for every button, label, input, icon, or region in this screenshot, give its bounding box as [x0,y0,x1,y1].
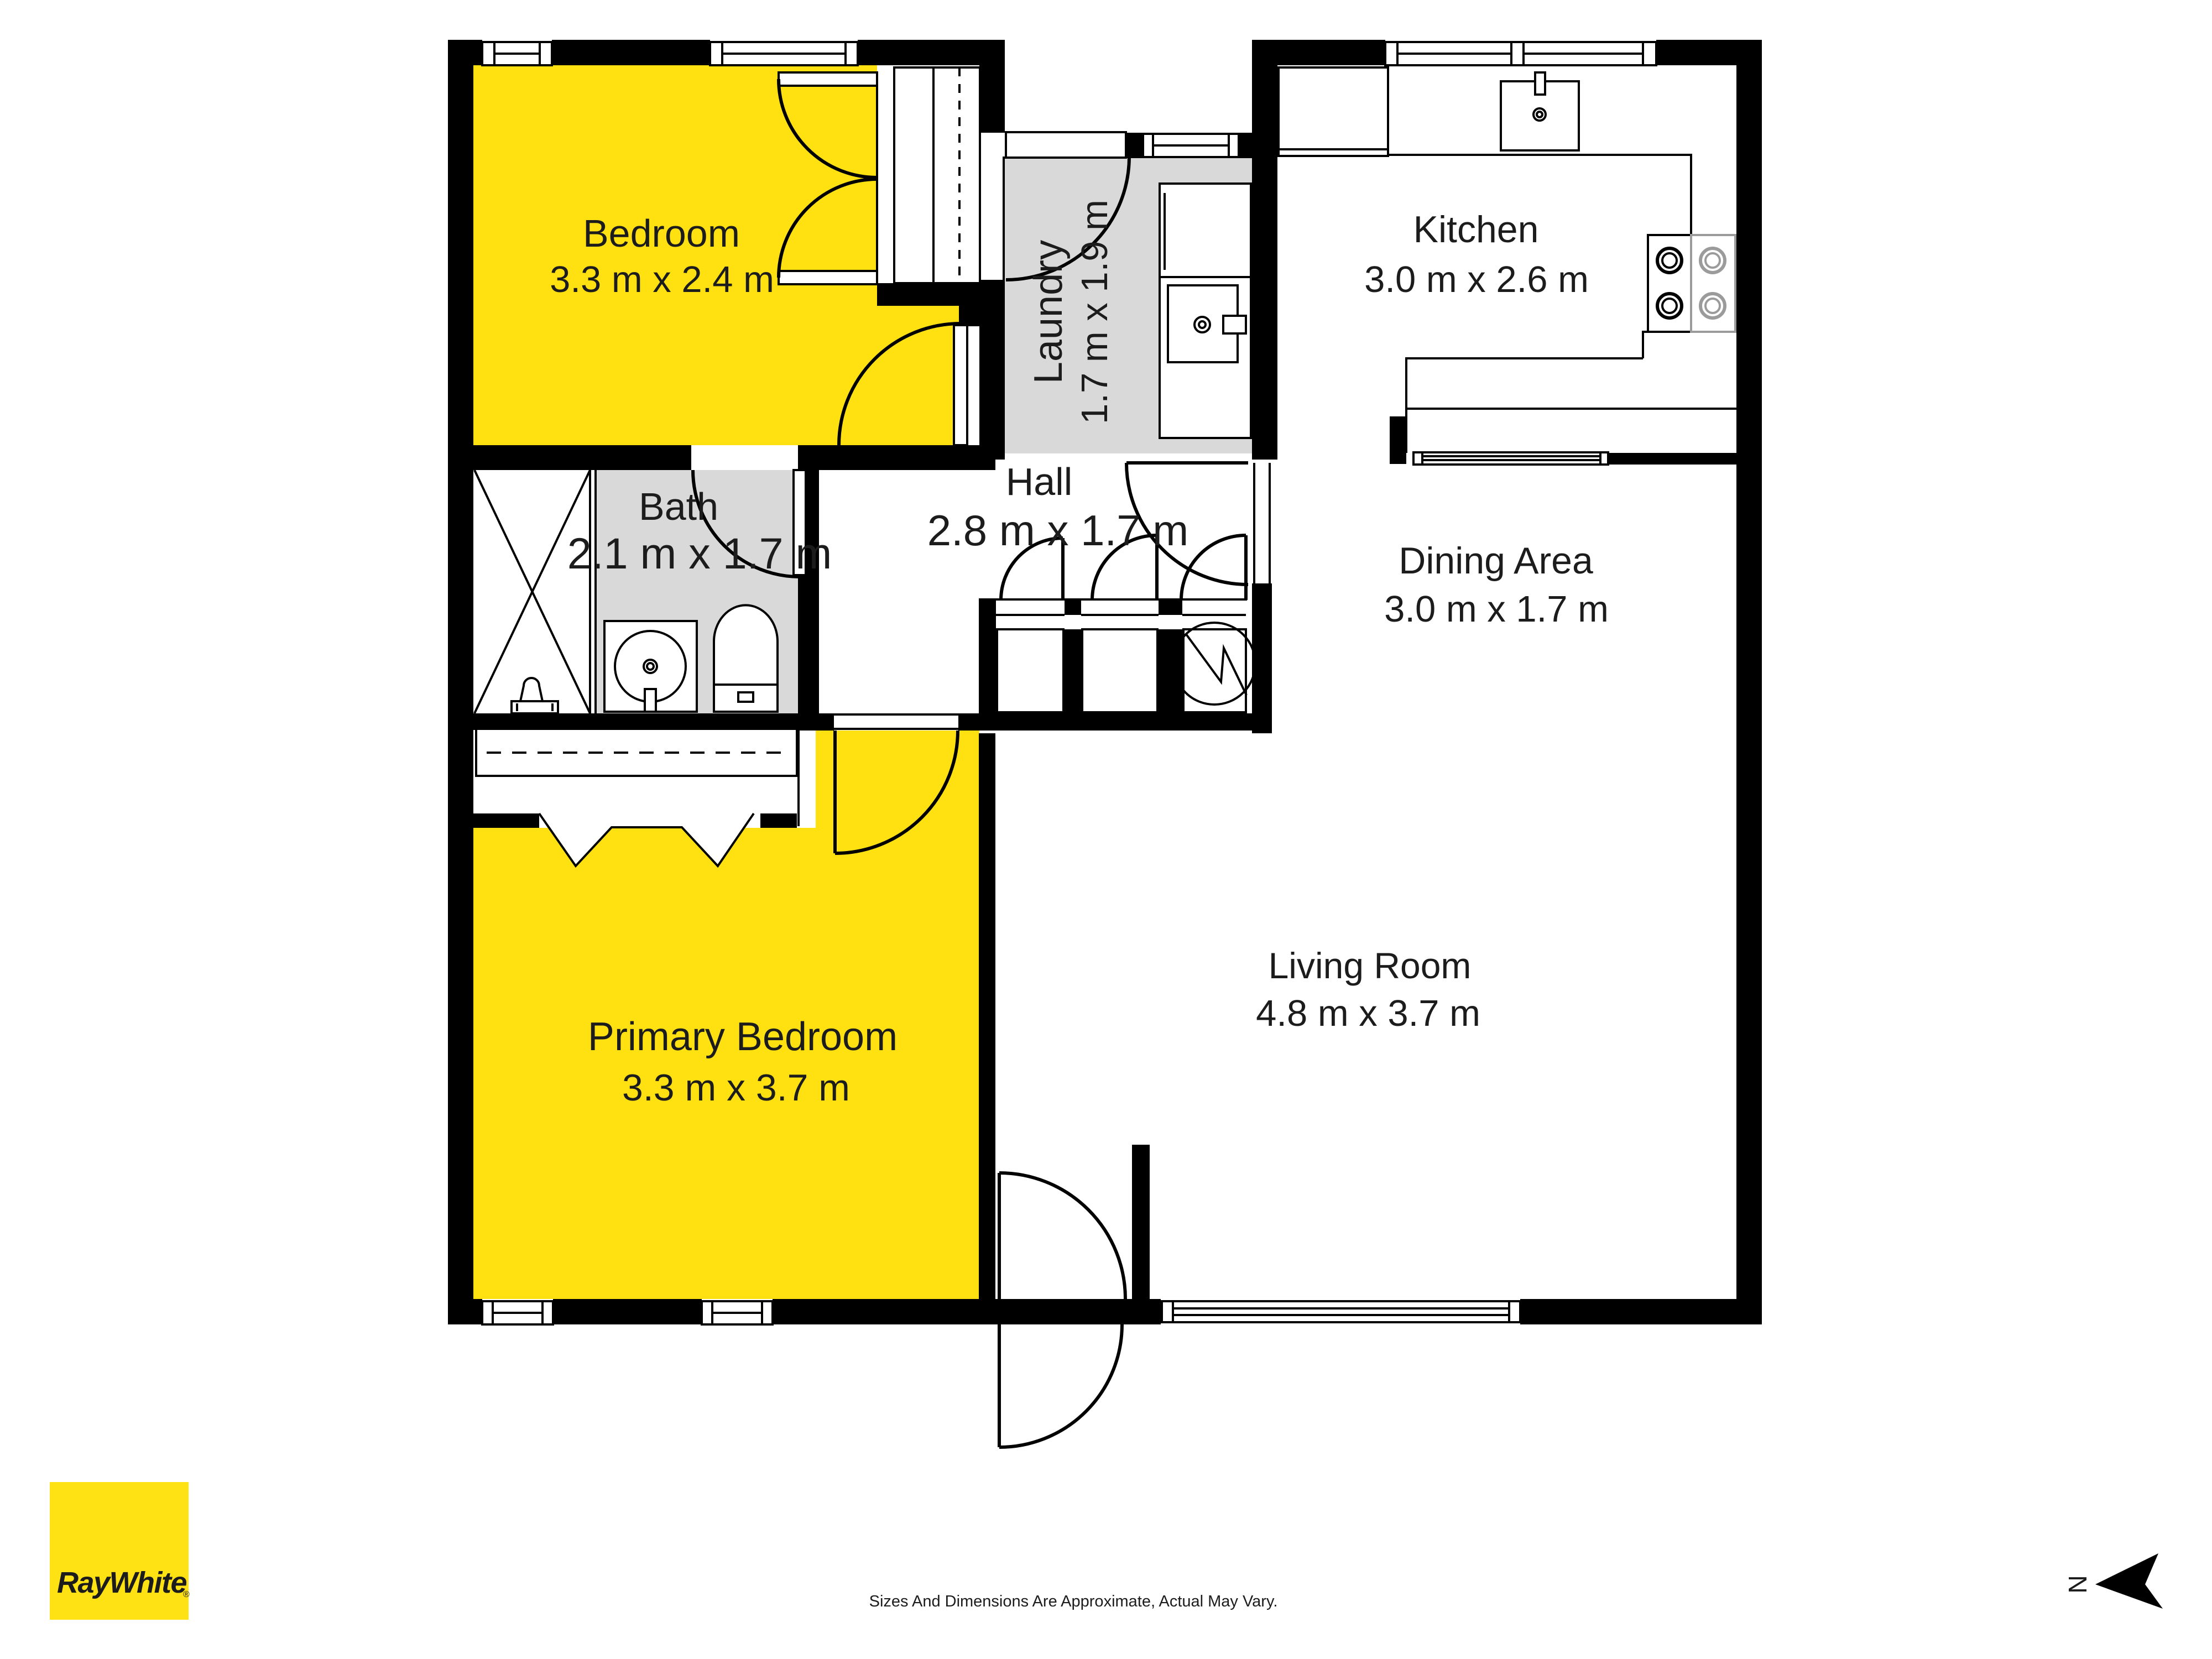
svg-text:N: N [2063,1575,2092,1593]
svg-text:Hall: Hall [1006,460,1073,503]
svg-text:Laundry: Laundry [1026,240,1071,384]
svg-text:2.1 m x 1.7 m: 2.1 m x 1.7 m [567,529,832,578]
svg-text:Sizes And Dimensions Are Appro: Sizes And Dimensions Are Approximate, Ac… [869,1593,1278,1610]
svg-text:Living Room: Living Room [1269,945,1472,986]
svg-text:RayWhite: RayWhite [57,1566,187,1599]
svg-text:3.3 m x 3.7 m: 3.3 m x 3.7 m [622,1067,850,1109]
svg-text:4.8 m x 3.7 m: 4.8 m x 3.7 m [1256,993,1480,1034]
svg-text:1.7 m x 1.9 m: 1.7 m x 1.9 m [1074,200,1115,424]
svg-text:3.3 m x 2.4 m: 3.3 m x 2.4 m [550,259,774,300]
svg-text:Dining Area: Dining Area [1399,540,1593,582]
svg-text:2.8 m x 1.7 m: 2.8 m x 1.7 m [927,506,1189,555]
svg-text:Bath: Bath [639,485,718,528]
svg-text:Kitchen: Kitchen [1413,208,1539,251]
svg-text:3.0 m x 1.7 m: 3.0 m x 1.7 m [1384,588,1609,630]
svg-text:Primary Bedroom: Primary Bedroom [588,1015,898,1059]
svg-text:Bedroom: Bedroom [583,212,740,255]
svg-text:3.0 m x 2.6 m: 3.0 m x 2.6 m [1364,259,1589,300]
svg-text:®: ® [183,1590,190,1599]
